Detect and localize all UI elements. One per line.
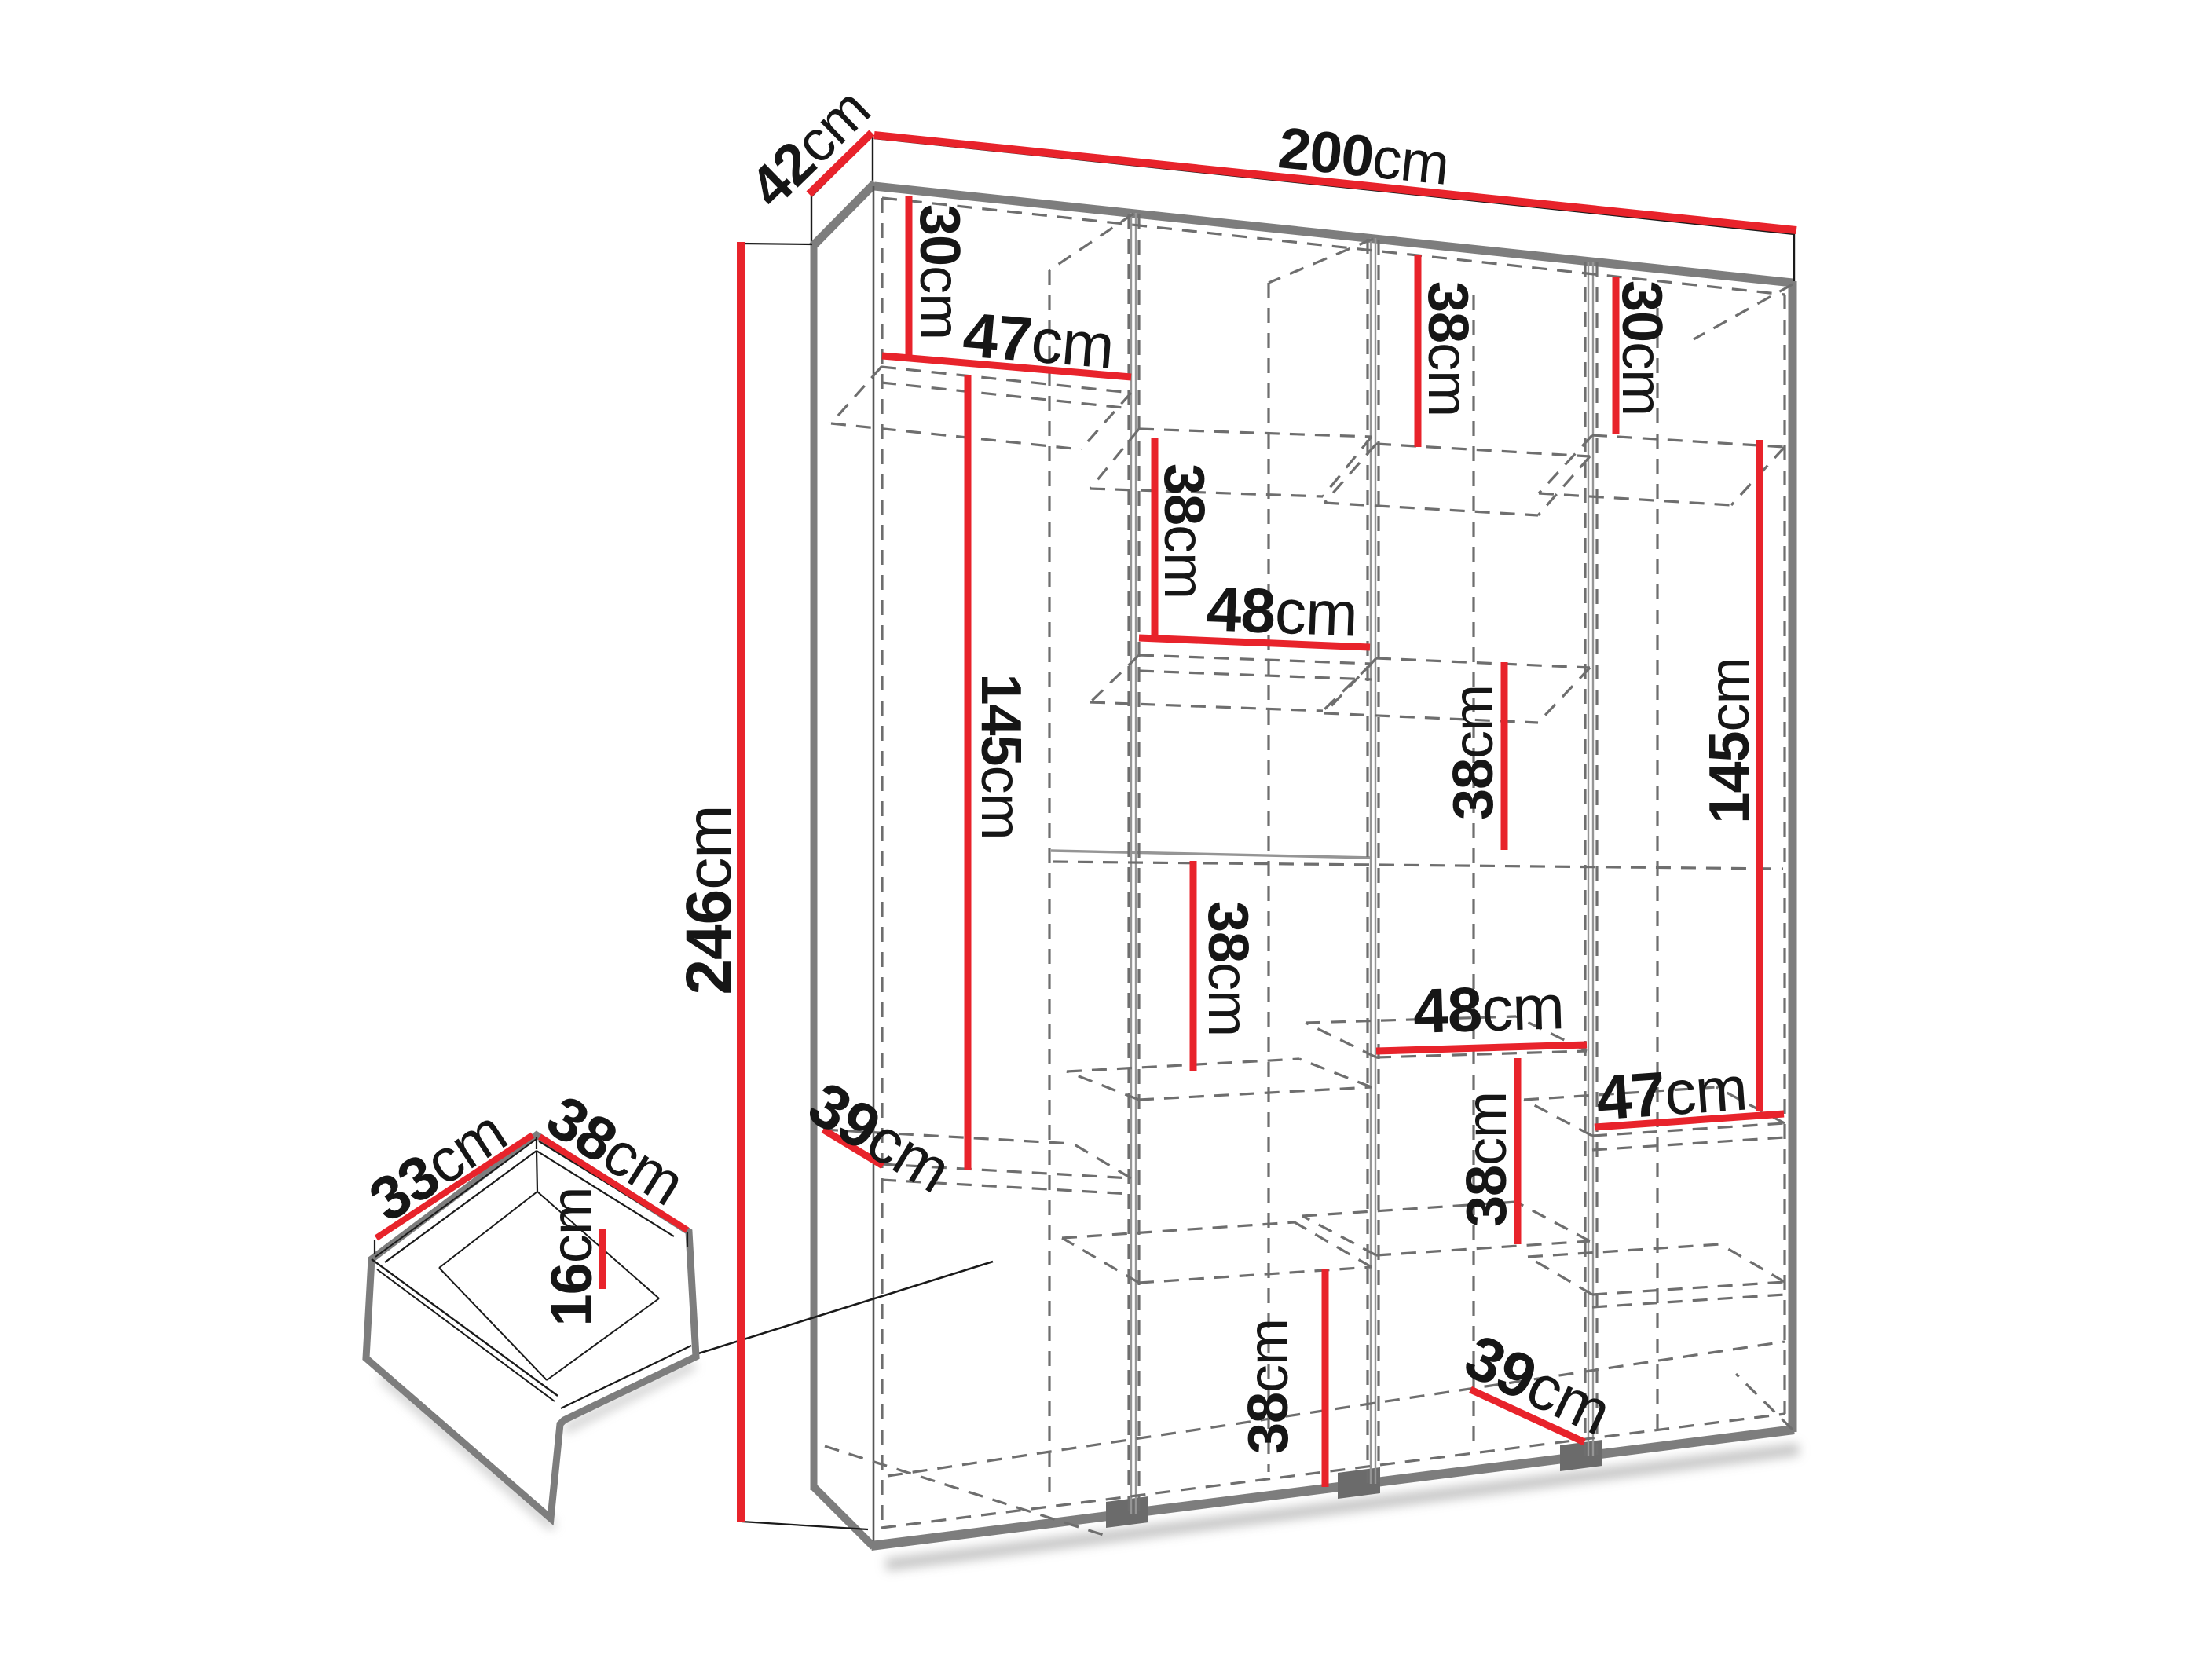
svg-text:38cm: 38cm: [1152, 463, 1215, 599]
svg-text:145cm: 145cm: [969, 673, 1032, 839]
svg-text:30cm: 30cm: [1610, 280, 1673, 416]
svg-text:47cm: 47cm: [961, 299, 1116, 382]
svg-text:16cm: 16cm: [539, 1188, 604, 1327]
svg-text:38cm: 38cm: [1456, 1092, 1518, 1227]
svg-text:145cm: 145cm: [1698, 657, 1761, 823]
svg-text:47cm: 47cm: [1594, 1053, 1749, 1133]
svg-text:246cm: 246cm: [673, 805, 745, 994]
svg-text:48cm: 48cm: [1206, 573, 1359, 649]
svg-text:38cm: 38cm: [1416, 281, 1479, 416]
svg-text:30cm: 30cm: [908, 204, 971, 339]
svg-text:38cm: 38cm: [1237, 1319, 1300, 1454]
svg-text:48cm: 48cm: [1412, 972, 1565, 1046]
svg-text:38cm: 38cm: [1196, 901, 1259, 1036]
svg-text:38cm: 38cm: [1442, 685, 1505, 820]
